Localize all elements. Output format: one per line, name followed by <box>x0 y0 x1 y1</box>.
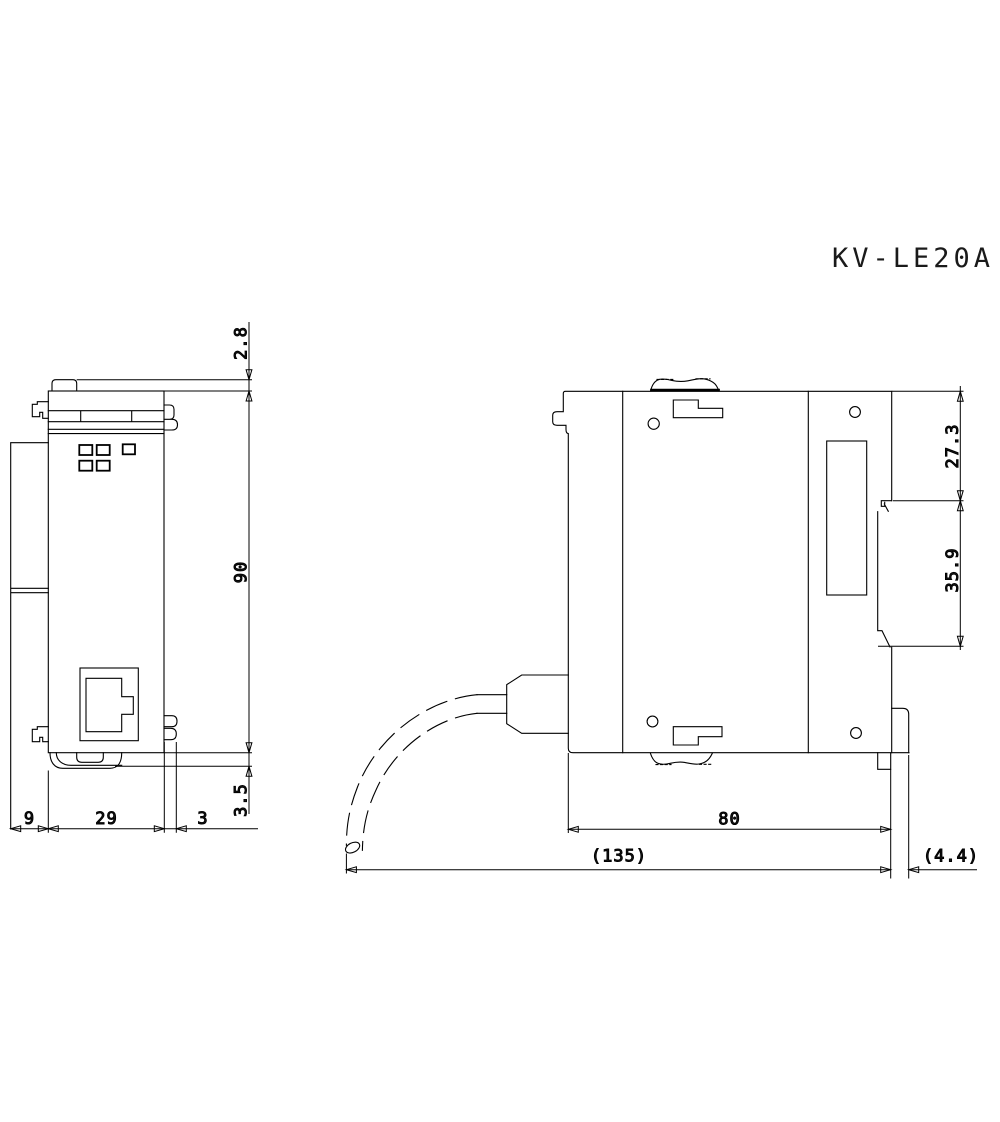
front-view <box>11 380 178 829</box>
drawing-title: KV-LE20A <box>832 243 994 274</box>
dimension-drawing: 2.8 90 3.5 9 29 3 27. <box>0 0 1000 1122</box>
din-rail-channel <box>878 501 892 753</box>
led-square <box>97 445 110 455</box>
dim-label-3: 3 <box>197 809 208 829</box>
body-top-grooves <box>48 411 164 434</box>
led-square <box>123 444 135 454</box>
mounting-step-lower <box>673 727 722 745</box>
side-view <box>344 379 909 856</box>
led-square <box>79 445 92 455</box>
led-square <box>97 461 110 471</box>
led-square <box>79 461 92 471</box>
cable-arc <box>346 695 477 851</box>
dim-label-135: (135) <box>591 847 647 867</box>
side-view-dimensions: 27.3 35.9 80 (135) (4.4) <box>346 386 979 879</box>
left-protrusion <box>11 443 49 829</box>
mounting-tab-top <box>52 380 77 391</box>
release-tab <box>892 708 909 752</box>
side-connector-pins-upper <box>164 405 178 430</box>
screw-hole <box>648 418 659 429</box>
expansion-slot <box>827 441 867 595</box>
mounting-step-upper <box>673 400 722 418</box>
side-connector-pins-lower <box>164 716 177 740</box>
cable-plug <box>507 675 569 733</box>
screw-hole <box>850 407 861 418</box>
cable-end <box>344 840 362 855</box>
led-indicators <box>79 444 135 470</box>
dim-label-29: 29 <box>95 809 117 829</box>
dim-label-90: 90 <box>232 561 252 583</box>
din-hook-upper <box>32 402 48 419</box>
screw-hole <box>851 728 862 739</box>
dim-label-3-5: 3.5 <box>232 783 252 817</box>
bottom-clip <box>650 753 712 764</box>
ethernet-port-bezel <box>80 668 138 741</box>
body-outline-side <box>553 391 909 752</box>
bottom-foot <box>878 753 891 770</box>
dim-label-27-3: 27.3 <box>943 424 963 469</box>
technical-drawing-page: 2.8 90 3.5 9 29 3 27. <box>0 0 1000 1122</box>
dim-label-2-8: 2.8 <box>232 326 252 360</box>
ethernet-rj45-jack <box>86 678 133 731</box>
dim-label-4-4: (4.4) <box>923 847 979 867</box>
dim-label-80: 80 <box>718 810 740 830</box>
dim-label-35-9: 35.9 <box>943 548 963 593</box>
screw-hole <box>647 716 658 727</box>
bottom-din-latch <box>50 753 122 769</box>
inner-panel-lines <box>623 391 809 752</box>
cable-stub <box>477 695 507 714</box>
dim-label-9: 9 <box>24 809 35 829</box>
din-hook-lower <box>32 727 48 742</box>
